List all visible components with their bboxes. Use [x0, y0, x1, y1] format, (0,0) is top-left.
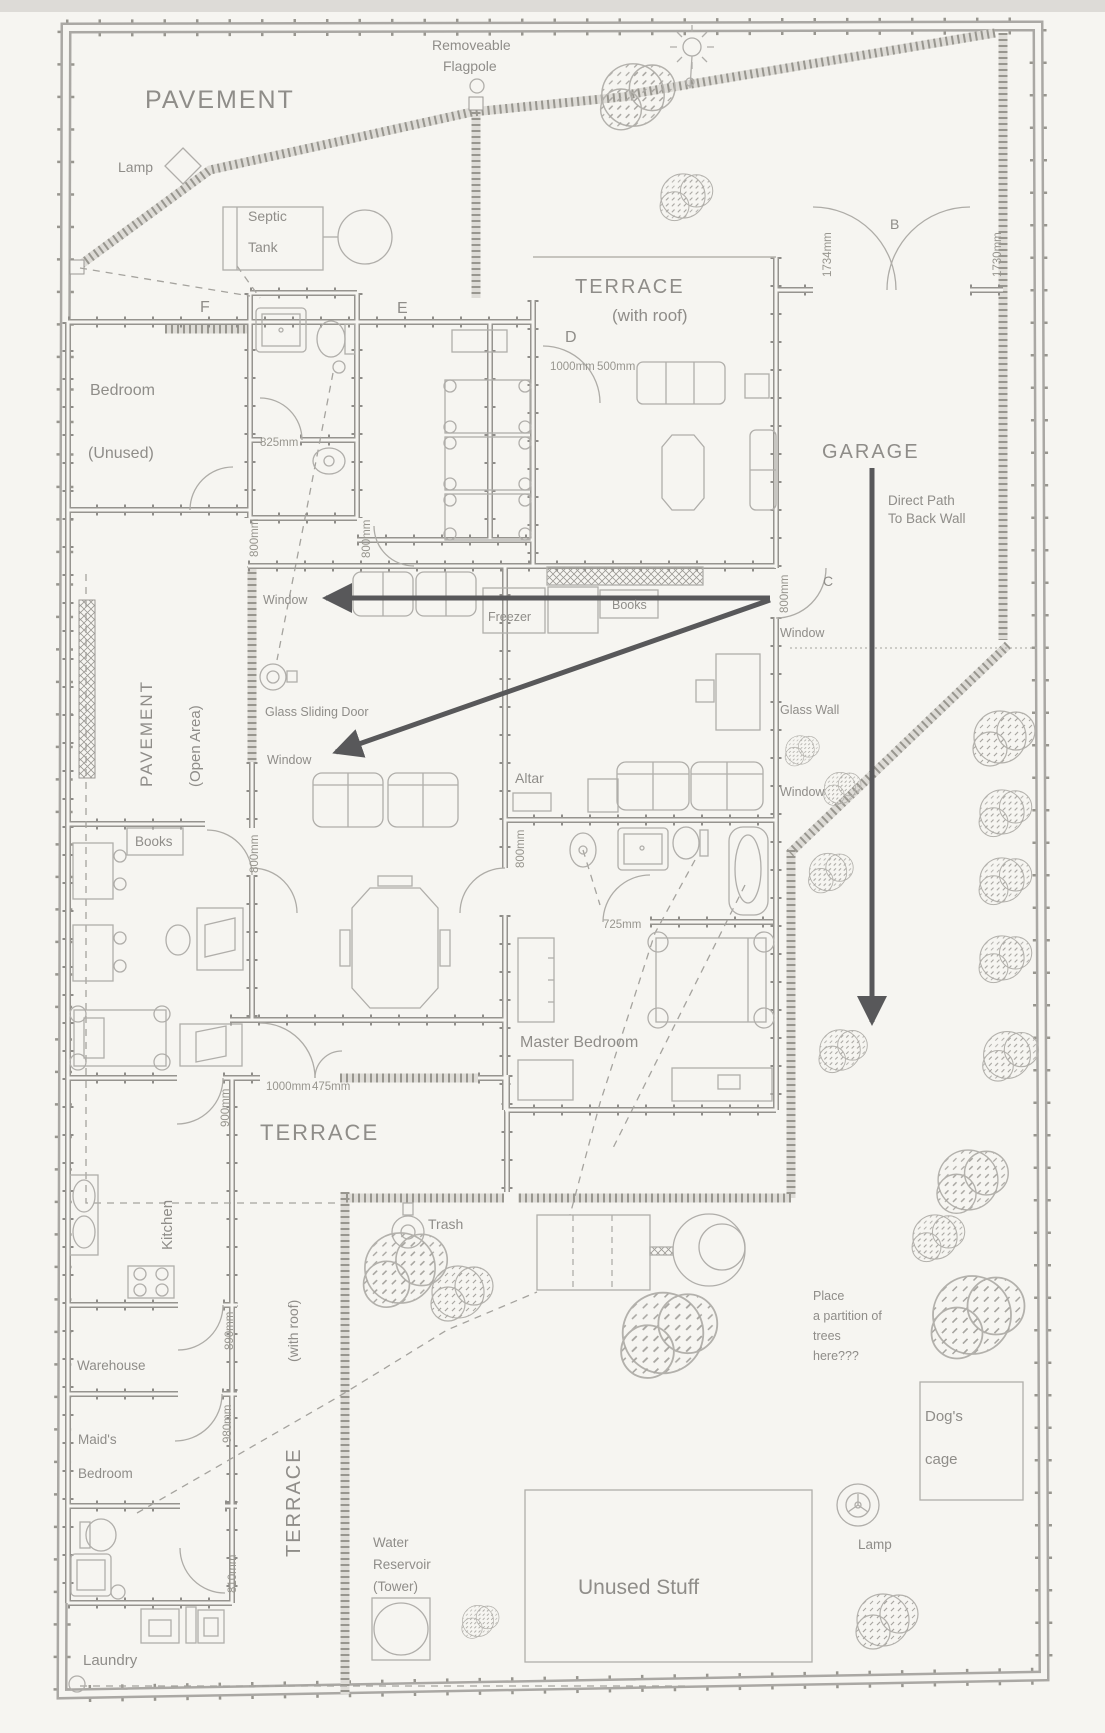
label-books-room: Books	[135, 834, 173, 849]
label-master-bedroom: Master Bedroom	[520, 1034, 638, 1051]
dim-kitchen-door: 900mm	[220, 1089, 232, 1127]
label-window-1: Window	[263, 593, 308, 607]
label-door-e: E	[397, 300, 408, 317]
label-terrace-left: TERRACE	[283, 1447, 305, 1557]
label-terrace-top: TERRACE	[575, 276, 685, 298]
dim-door-d-width: 1000mm	[550, 361, 595, 373]
label-flagpole-2: Flagpole	[443, 58, 497, 74]
dim-study-door: 800mm	[249, 835, 261, 873]
label-water-2: Reservoir	[373, 1557, 431, 1572]
label-glass-sliding-door: Glass Sliding Door	[265, 705, 369, 719]
fence-corner-post	[70, 260, 84, 274]
dim-hall-door-right: 800mm	[361, 520, 373, 558]
label-partition-2: a partition of	[813, 1309, 882, 1323]
label-water-1: Water	[373, 1535, 409, 1550]
dim-master-bath-door: 725mm	[603, 919, 641, 931]
label-water-3: (Tower)	[373, 1579, 418, 1594]
label-pavement-top: PAVEMENT	[145, 86, 295, 114]
label-unused-stuff: Unused Stuff	[578, 1576, 699, 1599]
dim-master-door: 800mm	[515, 830, 527, 868]
label-partition-4: here???	[813, 1349, 859, 1363]
label-door-d: D	[565, 329, 577, 346]
label-laundry: Laundry	[83, 1652, 138, 1669]
label-maids-1: Maid's	[78, 1432, 117, 1447]
label-window-2: Window	[780, 626, 825, 640]
dim-terrace-door-width: 1000mm	[266, 1081, 311, 1093]
label-lamp-top: Lamp	[118, 159, 153, 175]
shelf-icon	[547, 567, 703, 585]
label-freezer: Freezer	[488, 610, 531, 624]
dim-gate-b-right: 1730mm	[992, 232, 1004, 277]
label-maids-2: Bedroom	[78, 1466, 133, 1481]
label-terrace-mid: TERRACE	[260, 1120, 379, 1145]
floor-plan-page: PAVEMENT Removeable Flagpole Lamp Septic…	[0, 0, 1105, 1733]
label-direct-path-1: Direct Path	[888, 493, 955, 508]
dim-terrace-door-side: 475mm	[312, 1081, 350, 1093]
label-glass-wall: Glass Wall	[780, 703, 839, 717]
paper-background	[0, 0, 1105, 1733]
label-partition-3: trees	[813, 1329, 841, 1343]
label-septic-1: Septic	[248, 208, 287, 224]
label-flagpole-1: Removeable	[432, 37, 511, 53]
label-dogs-cage-2: cage	[925, 1451, 958, 1468]
label-altar: Altar	[515, 770, 544, 786]
dim-door-c: 800mm	[779, 575, 791, 613]
label-kitchen: Kitchen	[159, 1200, 176, 1250]
label-books-shelf: Books	[612, 598, 647, 612]
label-direct-path-2: To Back Wall	[888, 511, 966, 526]
label-door-f: F	[200, 299, 210, 316]
dim-gate-b-left: 1734mm	[822, 232, 834, 277]
label-trash: Trash	[428, 1216, 463, 1232]
dim-bath-door: 825mm	[260, 437, 298, 449]
planter-strip	[79, 600, 95, 778]
label-window-3: Window	[267, 753, 312, 767]
label-terrace-left-sub: (with roof)	[285, 1300, 301, 1362]
dim-laundry-door: 810mm	[227, 1555, 239, 1593]
label-pavement-open-1: PAVEMENT	[137, 680, 156, 787]
dim-door-d-side: 500mm	[597, 361, 635, 373]
label-door-b: B	[890, 216, 899, 232]
label-septic-2: Tank	[248, 239, 279, 255]
label-bedroom-unused-1: Bedroom	[90, 382, 155, 399]
label-pavement-open-2: (Open Area)	[187, 705, 204, 787]
label-dogs-cage-1: Dog's	[925, 1408, 963, 1425]
dim-maids-door: 980mm	[222, 1405, 234, 1443]
label-warehouse: Warehouse	[77, 1358, 146, 1373]
label-window-4: Window	[780, 785, 825, 799]
label-garage: GARAGE	[822, 441, 920, 463]
dim-hall-door-left: 800mm	[249, 519, 261, 557]
label-lamp-bottom: Lamp	[858, 1537, 892, 1552]
label-partition-1: Place	[813, 1289, 844, 1303]
label-door-c: C	[823, 573, 833, 589]
scan-edge	[0, 0, 1105, 12]
label-terrace-top-sub: (with roof)	[612, 306, 688, 325]
floor-plan-drawing: PAVEMENT Removeable Flagpole Lamp Septic…	[0, 0, 1105, 1733]
fence-junction-post	[469, 97, 483, 110]
dim-warehouse-door: 890mm	[224, 1312, 236, 1350]
label-bedroom-unused-2: (Unused)	[88, 445, 154, 462]
